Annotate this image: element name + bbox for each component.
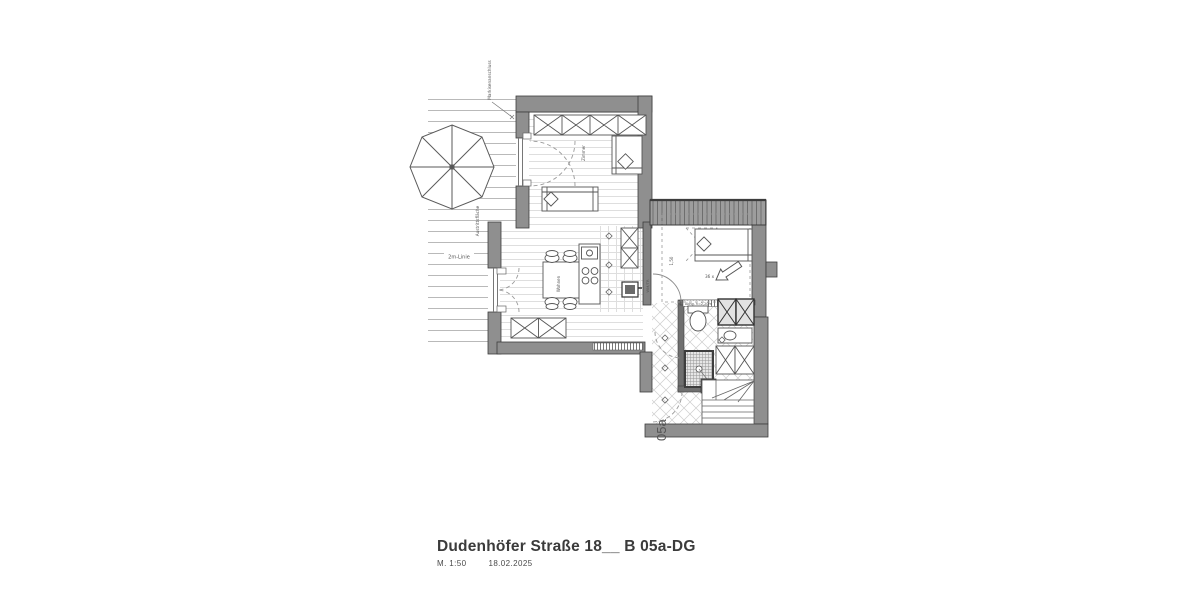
apartment-number: 05a: [654, 419, 669, 441]
svg-text:Austrittsfläche: Austrittsfläche: [475, 205, 480, 236]
floor-plan-drawing: 2m-Linie Markisenanschluss Austrittsfläc…: [0, 0, 1200, 600]
staircase: [701, 379, 754, 424]
svg-text:2m-Linie: 2m-Linie: [448, 255, 470, 261]
dormer-band: [650, 200, 766, 225]
kitchen-tall-cabinet: [621, 228, 638, 268]
living-label: Wohnen: [556, 275, 561, 292]
title-block: Dudenhöfer Straße 18__ B 05a-DG M. 1:50 …: [437, 538, 696, 568]
wall-hatch: [593, 343, 643, 350]
plan-title: Dudenhöfer Straße 18__ B 05a-DG: [437, 538, 696, 556]
living-low-cabinet: [511, 318, 566, 338]
terrace-annotation: Austrittsfläche: [475, 205, 480, 236]
bedroom2-bed: [695, 229, 752, 261]
shaft-boxes: [718, 299, 754, 325]
bedroom2-dim: 1,50: [669, 256, 674, 265]
room1-knee-cabinet: [534, 115, 646, 135]
plan-date: 18.02.2025: [488, 559, 532, 568]
kitchen-counter: [579, 244, 600, 304]
room1-label: Zimmer: [581, 145, 586, 161]
room1-sofa: [542, 187, 598, 211]
washbasin: [718, 328, 752, 343]
plan-scale: M. 1:50: [437, 559, 466, 568]
bedroom2-door-swing: [653, 274, 681, 302]
svg-text:Abhg. h=2,20m: Abhg. h=2,20m: [685, 302, 712, 306]
bath-cupboards: [716, 346, 754, 374]
svg-text:Markisenanschluss: Markisenanschluss: [487, 60, 492, 99]
bedroom2-steps-label: 36 x: [705, 274, 715, 279]
floor-plan-sheet: 2m-Linie Markisenanschluss Austrittsfläc…: [0, 0, 1200, 600]
soffit-label: Abhg. h=2,20m: [683, 300, 718, 307]
room1-bed: [612, 136, 642, 174]
utility-label: WM/TR: [645, 279, 650, 293]
direction-arrow-icon: [716, 262, 742, 281]
parasol-icon: [410, 125, 494, 209]
two-meter-line-label: 2m-Linie: [444, 252, 474, 261]
